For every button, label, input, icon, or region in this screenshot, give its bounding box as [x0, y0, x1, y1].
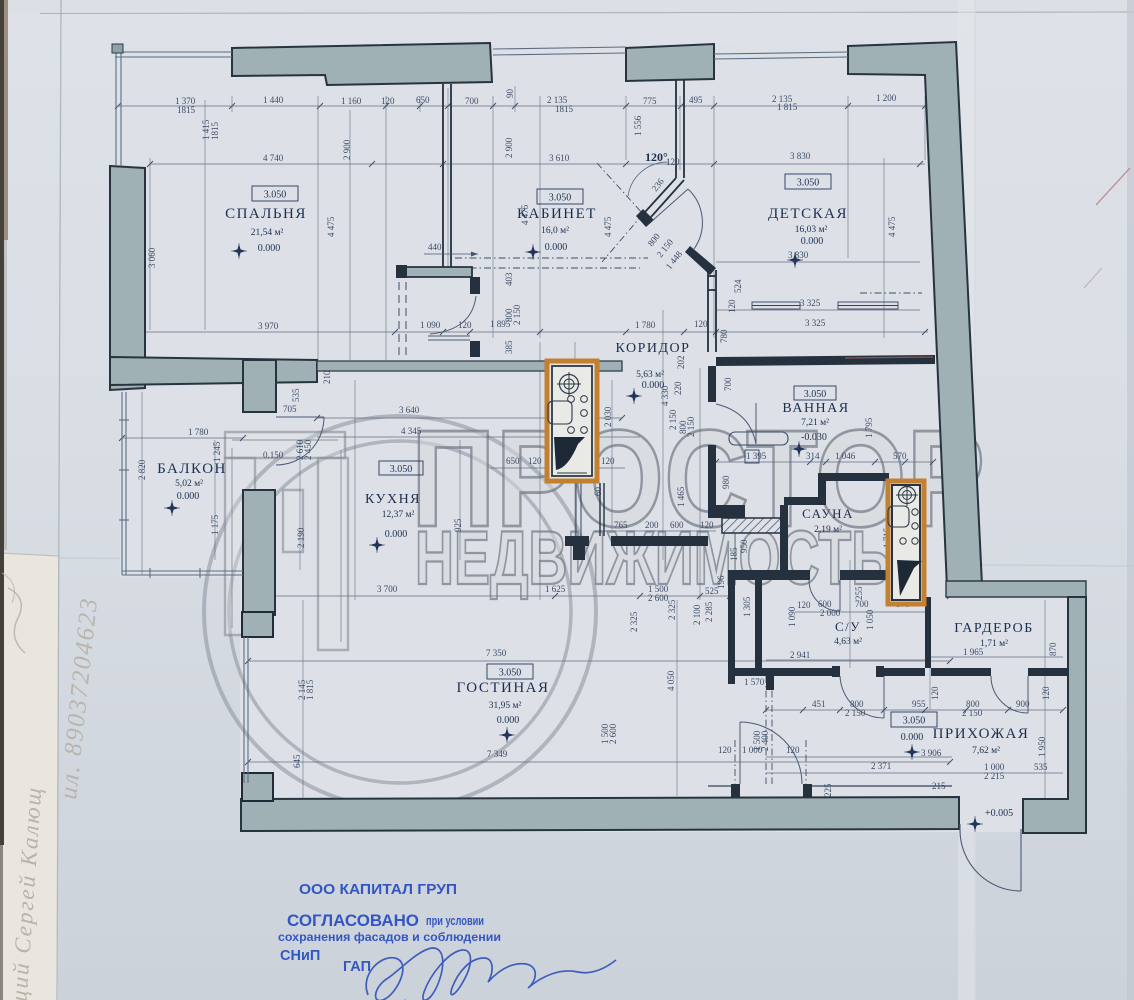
svg-text:1 000: 1 000: [742, 745, 763, 755]
svg-text:385: 385: [504, 340, 514, 354]
svg-text:120: 120: [1041, 686, 1051, 700]
svg-text:3 830: 3 830: [788, 250, 809, 260]
svg-text:600: 600: [670, 520, 684, 530]
svg-text:0.000: 0.000: [177, 491, 200, 502]
svg-text:451: 451: [812, 699, 826, 709]
svg-text:3 906: 3 906: [921, 748, 942, 758]
svg-text:7,21 м²: 7,21 м²: [801, 418, 829, 428]
svg-text:120: 120: [381, 96, 395, 106]
svg-text:120: 120: [930, 686, 940, 700]
svg-text:225: 225: [823, 783, 833, 797]
svg-text:3.050: 3.050: [549, 193, 572, 204]
svg-text:3 640: 3 640: [399, 405, 420, 415]
svg-text:1 815: 1 815: [305, 679, 315, 700]
svg-text:БАЛКОН: БАЛКОН: [157, 461, 227, 477]
svg-text:4 475: 4 475: [326, 216, 336, 237]
svg-text:31,95 м²: 31,95 м²: [489, 701, 522, 711]
svg-text:ВАННАЯ: ВАННАЯ: [782, 401, 849, 416]
svg-text:1 090: 1 090: [420, 320, 441, 330]
svg-text:2 215: 2 215: [984, 771, 1005, 781]
svg-text:3 325: 3 325: [805, 318, 826, 328]
svg-text:0.000: 0.000: [497, 715, 520, 726]
svg-text:1 556: 1 556: [633, 115, 643, 136]
svg-text:120: 120: [786, 745, 800, 755]
svg-text:2 820: 2 820: [137, 459, 147, 480]
svg-text:3.050: 3.050: [797, 178, 820, 189]
svg-text:сохранения фасадов и соблюдени: сохранения фасадов и соблюдении: [278, 930, 501, 944]
svg-text:21,54 м²: 21,54 м²: [251, 228, 284, 238]
svg-text:16,03 м²: 16,03 м²: [795, 225, 828, 235]
svg-text:0.000: 0.000: [801, 236, 824, 247]
svg-text:120: 120: [694, 319, 708, 329]
svg-text:3.050: 3.050: [264, 190, 287, 201]
svg-text:1815: 1815: [177, 105, 196, 115]
svg-text:7 350: 7 350: [486, 648, 507, 658]
svg-text:650: 650: [416, 95, 430, 105]
svg-text:1 815: 1 815: [777, 102, 798, 112]
svg-text:2 150: 2 150: [962, 708, 983, 718]
svg-text:765: 765: [614, 520, 628, 530]
svg-text:1 175: 1 175: [210, 514, 220, 535]
svg-text:при условии: при условии: [426, 914, 484, 928]
svg-text:1 440: 1 440: [263, 95, 284, 105]
svg-text:12,37 м²: 12,37 м²: [382, 510, 415, 520]
svg-text:1 950: 1 950: [1037, 736, 1047, 757]
svg-text:0.150: 0.150: [263, 450, 284, 460]
svg-text:705: 705: [283, 404, 297, 414]
svg-text:КУХНЯ: КУХНЯ: [365, 492, 421, 507]
svg-text:2 150: 2 150: [512, 304, 522, 325]
svg-text:1 305: 1 305: [742, 596, 752, 617]
svg-text:2 941: 2 941: [790, 650, 810, 660]
svg-text:2 285: 2 285: [704, 601, 714, 622]
svg-text:СНиП: СНиП: [280, 948, 320, 964]
svg-text:1 050: 1 050: [865, 609, 875, 630]
svg-text:495: 495: [689, 95, 703, 105]
svg-text:4 345: 4 345: [401, 426, 422, 436]
svg-text:925: 925: [453, 518, 463, 532]
svg-text:200: 200: [645, 520, 659, 530]
svg-text:СПАЛЬНЯ: СПАЛЬНЯ: [225, 206, 307, 222]
svg-text:120: 120: [458, 320, 472, 330]
svg-text:2 600: 2 600: [648, 593, 669, 603]
svg-text:ДЕТСКАЯ: ДЕТСКАЯ: [768, 206, 848, 222]
svg-text:220: 220: [673, 381, 683, 395]
svg-text:С/У: С/У: [835, 619, 861, 634]
svg-text:1,71 м²: 1,71 м²: [980, 639, 1008, 649]
svg-text:16,0 м²: 16,0 м²: [541, 226, 569, 236]
svg-text:КАБИНЕТ: КАБИНЕТ: [517, 206, 597, 222]
svg-text:7 349: 7 349: [487, 749, 508, 759]
svg-text:650: 650: [506, 456, 520, 466]
svg-text:2 030: 2 030: [603, 406, 613, 427]
svg-text:3 325: 3 325: [800, 298, 821, 308]
svg-text:3.050: 3.050: [499, 668, 522, 679]
svg-text:0.000: 0.000: [901, 732, 924, 743]
svg-text:ООО КАПИТАЛ ГРУП: ООО КАПИТАЛ ГРУП: [299, 881, 457, 898]
svg-text:5,63 м²: 5,63 м²: [636, 370, 664, 380]
svg-text:440: 440: [428, 242, 442, 252]
svg-text:3 970: 3 970: [258, 321, 279, 331]
svg-text:0.000: 0.000: [545, 242, 568, 253]
svg-text:700: 700: [855, 599, 869, 609]
svg-text:645: 645: [292, 754, 302, 768]
svg-text:2 600: 2 600: [608, 723, 618, 744]
svg-text:1815: 1815: [210, 122, 220, 141]
svg-text:185: 185: [729, 547, 739, 561]
svg-text:САУНА: САУНА: [802, 506, 854, 521]
svg-text:60: 60: [593, 487, 603, 497]
svg-text:ГОСТИНАЯ: ГОСТИНАЯ: [457, 680, 550, 696]
svg-text:535: 535: [1034, 762, 1048, 772]
svg-text:1 625: 1 625: [545, 584, 566, 594]
svg-text:314: 314: [806, 451, 820, 461]
svg-text:2 100: 2 100: [692, 604, 702, 625]
svg-text:403: 403: [504, 272, 514, 286]
svg-text:980: 980: [721, 475, 731, 489]
svg-text:2 371: 2 371: [871, 761, 891, 771]
svg-text:5,02 м²: 5,02 м²: [175, 479, 203, 489]
svg-text:3 610: 3 610: [549, 153, 570, 163]
svg-text:0.000: 0.000: [642, 380, 665, 391]
svg-text:3.050: 3.050: [390, 464, 413, 475]
svg-text:1 395: 1 395: [746, 451, 767, 461]
svg-text:4 050: 4 050: [666, 670, 676, 691]
svg-text:ПРИХОЖАЯ: ПРИХОЖАЯ: [933, 726, 1030, 742]
svg-text:3 060: 3 060: [147, 247, 157, 268]
svg-text:524: 524: [733, 279, 743, 293]
svg-text:1 200: 1 200: [876, 93, 897, 103]
svg-text:120: 120: [727, 299, 737, 313]
svg-text:7,62 м²: 7,62 м²: [972, 746, 1000, 756]
svg-text:1 570: 1 570: [744, 677, 765, 687]
svg-text:535: 535: [291, 388, 301, 402]
svg-text:2 325: 2 325: [629, 611, 639, 632]
svg-text:2 150: 2 150: [668, 409, 678, 430]
svg-text:120: 120: [666, 157, 680, 167]
svg-text:950: 950: [739, 539, 749, 553]
svg-text:775: 775: [643, 96, 657, 106]
svg-text:90: 90: [505, 89, 515, 99]
svg-text:3.050: 3.050: [903, 716, 926, 727]
svg-text:1 046: 1 046: [835, 451, 856, 461]
svg-text:4 475: 4 475: [603, 216, 613, 237]
svg-text:210: 210: [322, 370, 332, 384]
svg-text:255: 255: [854, 586, 864, 600]
svg-text:120: 120: [528, 456, 542, 466]
svg-text:1 245: 1 245: [212, 441, 222, 462]
svg-text:4 740: 4 740: [263, 153, 284, 163]
svg-text:+0.005: +0.005: [985, 808, 1013, 819]
svg-text:120: 120: [718, 745, 732, 755]
svg-text:1 780: 1 780: [635, 320, 656, 330]
svg-text:4,63 м²: 4,63 м²: [834, 637, 862, 647]
svg-text:2 190: 2 190: [296, 527, 306, 548]
svg-text:780: 780: [719, 329, 729, 343]
svg-text:КОРИДОР: КОРИДОР: [616, 341, 691, 356]
svg-text:1 160: 1 160: [341, 96, 362, 106]
svg-text:2 900: 2 900: [504, 137, 514, 158]
svg-text:1 465: 1 465: [676, 486, 686, 507]
svg-text:120: 120: [797, 600, 811, 610]
svg-text:1 780: 1 780: [188, 427, 209, 437]
svg-text:870: 870: [1048, 642, 1058, 656]
svg-text:700: 700: [465, 96, 479, 106]
svg-text:3 700: 3 700: [377, 584, 398, 594]
svg-text:3.050: 3.050: [804, 389, 827, 400]
svg-text:3 830: 3 830: [790, 151, 811, 161]
svg-text:2 150: 2 150: [686, 416, 696, 437]
svg-text:570: 570: [893, 451, 907, 461]
svg-text:700: 700: [723, 377, 733, 391]
svg-text:120: 120: [700, 520, 714, 530]
svg-text:525: 525: [705, 586, 719, 596]
svg-text:СОГЛАСОВАНО: СОГЛАСОВАНО: [287, 912, 419, 930]
svg-text:-0.030: -0.030: [801, 432, 827, 443]
svg-text:2 325: 2 325: [667, 599, 677, 620]
svg-text:ГАРДЕРОБ: ГАРДЕРОБ: [954, 621, 1034, 636]
svg-text:2 900: 2 900: [342, 139, 352, 160]
svg-text:1 090: 1 090: [787, 606, 797, 627]
svg-text:2,19 м²: 2,19 м²: [814, 525, 842, 535]
svg-text:ГАП: ГАП: [343, 959, 371, 975]
svg-text:1 795: 1 795: [864, 417, 874, 438]
svg-text:120: 120: [601, 456, 615, 466]
svg-text:202: 202: [676, 356, 686, 370]
svg-text:1815: 1815: [555, 104, 574, 114]
svg-text:0.000: 0.000: [258, 243, 281, 254]
svg-text:4 475: 4 475: [887, 216, 897, 237]
svg-text:955: 955: [912, 699, 926, 709]
svg-text:0.000: 0.000: [385, 529, 408, 540]
